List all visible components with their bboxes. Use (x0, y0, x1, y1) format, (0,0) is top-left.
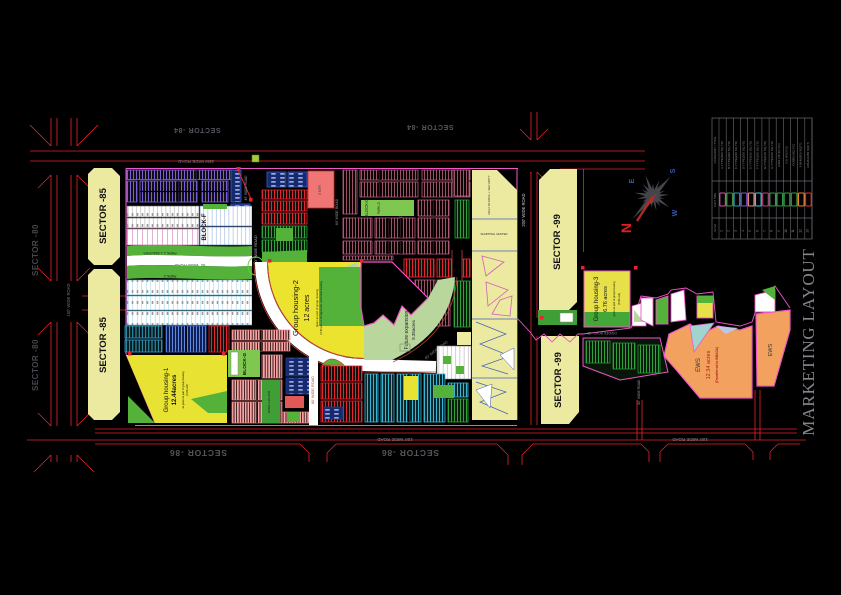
svg-text:7: 7 (763, 230, 767, 232)
svg-text:SECTOR -85: SECTOR -85 (98, 187, 109, 244)
svg-text:9: 9 (777, 230, 781, 232)
svg-text:12 acres: 12 acres (304, 294, 311, 321)
svg-text:Group housing-1: Group housing-1 (164, 367, 170, 412)
svg-text:N: N (618, 223, 634, 233)
svg-text:3: 3 (734, 230, 738, 232)
svg-text:60' WIDE ROAD: 60' WIDE ROAD (335, 198, 339, 225)
svg-text:Group housing-2: Group housing-2 (291, 280, 300, 336)
svg-text:150' WIDE ROAD: 150' WIDE ROAD (66, 283, 71, 316)
svg-text:as given as part of group hous: as given as part of group housing (182, 371, 185, 409)
svg-text:SECTOR -86: SECTOR -86 (381, 448, 439, 458)
svg-text:45' WIDE ROAD: 45' WIDE ROAD (244, 175, 248, 201)
svg-text:100' WIDE ROAD: 100' WIDE ROAD (671, 437, 707, 442)
svg-text:SHOPPING CENTER: SHOPPING CENTER (480, 232, 507, 236)
svg-text:GH (PLOTS): GH (PLOTS) (784, 146, 788, 163)
svg-text:2: 2 (727, 230, 731, 232)
svg-text:SECTOR -86: SECTOR -86 (169, 448, 227, 458)
svg-text:PARK-D: PARK-D (377, 201, 381, 214)
svg-text:25M WIDE ROAD: 25M WIDE ROAD (177, 159, 214, 164)
svg-text:13: 13 (805, 229, 809, 233)
svg-text:EWS: EWS (696, 358, 702, 372)
svg-text:80' WIDE ROAD: 80' WIDE ROAD (311, 376, 315, 404)
svg-text:80' WIDE ROAD: 80' WIDE ROAD (253, 235, 258, 265)
svg-text:9 MTR: 9 MTR (318, 185, 322, 195)
svg-text:SECTOR -80: SECTOR -80 (31, 224, 40, 276)
svg-text:given as part of group housing: given as part of group housing (315, 289, 319, 327)
svg-text:SECTOR -84: SECTOR -84 (406, 123, 453, 130)
svg-text:PLOT SIZE: PLOT SIZE (713, 193, 717, 207)
svg-text:100' WIDE ROAD: 100' WIDE ROAD (376, 437, 412, 442)
svg-text:1: 1 (720, 230, 724, 232)
svg-text:SECTOR -80: SECTOR -80 (31, 339, 40, 391)
svg-text:C-TYPE(240 SQ.YD): C-TYPE(240 SQ.YD) (734, 141, 738, 169)
svg-text:SECTOR -99: SECTOR -99 (553, 352, 564, 408)
svg-text:SECTOR -84: SECTOR -84 (173, 126, 220, 133)
svg-text:8: 8 (770, 230, 774, 232)
svg-text:HIGH SCHOOL + SECURITY: HIGH SCHOOL + SECURITY (487, 175, 491, 214)
svg-text:OPEN 1.29 ACR: OPEN 1.29 ACR (267, 390, 271, 413)
svg-text:Group housing-3: Group housing-3 (594, 276, 600, 321)
svg-text:9.35acres: 9.35acres (411, 319, 416, 340)
svg-text:BLOCK-F: BLOCK-F (202, 213, 208, 240)
svg-text:80' WIDE ROAD: 80' WIDE ROAD (637, 379, 641, 405)
svg-text:BLOCK-D: BLOCK-D (364, 199, 369, 218)
svg-text:(Transferred to BMADA): (Transferred to BMADA) (715, 347, 719, 383)
svg-text:12: 12 (798, 229, 802, 233)
svg-text:SECTOR -85: SECTOR -85 (98, 316, 109, 373)
svg-text:2-BHK(850 SQFT): 2-BHK(850 SQFT) (799, 143, 803, 168)
svg-text:E: E (629, 178, 636, 183)
svg-text:SECTOR -99: SECTOR -99 (552, 214, 563, 270)
svg-text:A-TYPE(500 SQ.YD): A-TYPE(500 SQ.YD) (720, 141, 724, 169)
svg-text:5: 5 (748, 230, 752, 232)
svg-text:F-TYPE(150 SQ.YD): F-TYPE(150 SQ.YD) (756, 141, 760, 169)
svg-text:6: 6 (755, 230, 759, 232)
svg-text:12.34 acres: 12.34 acres (706, 350, 712, 379)
svg-text:11: 11 (791, 229, 795, 233)
svg-text:PARK-2: PARK-2 (164, 274, 177, 278)
svg-text:S: S (670, 168, 677, 173)
svg-text:3-BHK(1250 SQFT): 3-BHK(1250 SQFT) (806, 142, 810, 168)
svg-text:12.44acres: 12.44acres (172, 374, 178, 405)
svg-text:COMM (SQ.YD): COMM (SQ.YD) (792, 144, 796, 166)
svg-text:CATEGORY / TYPE: CATEGORY / TYPE (713, 137, 717, 164)
svg-text:given as part of group housing: given as part of group housing (612, 281, 616, 316)
svg-text:(P-80+G3): (P-80+G3) (617, 293, 621, 305)
svg-text:(P-80+G3): (P-80+G3) (186, 384, 189, 396)
svg-text:EWS: EWS (768, 343, 774, 356)
svg-text:PARK-1 1.49ACRES: PARK-1 1.49ACRES (143, 251, 177, 255)
svg-text:SL.NO: SL.NO (713, 224, 717, 232)
svg-text:(P-80+G3 +1 G2 Approved) comma: (P-80+G3 +1 G2 Approved) commando housin… (320, 281, 323, 335)
svg-text:D-TYPE(200 SQ.YD): D-TYPE(200 SQ.YD) (741, 141, 745, 169)
svg-text:Future expansion: Future expansion (404, 310, 410, 349)
svg-text:E-TYPE(162 SQ.YD): E-TYPE(162 SQ.YD) (749, 141, 753, 169)
svg-text:10: 10 (784, 229, 788, 233)
svg-text:DIVIDED ROAD - 88: DIVIDED ROAD - 88 (587, 331, 617, 335)
svg-text:6.76 acres: 6.76 acres (603, 286, 609, 312)
svg-text:W: W (672, 209, 679, 216)
svg-text:MARKETING LAYOUT: MARKETING LAYOUT (799, 248, 818, 435)
svg-text:B-TYPE(300 SQ.YD): B-TYPE(300 SQ.YD) (727, 141, 731, 169)
svg-text:4: 4 (741, 230, 745, 232)
svg-text:200' WIDE ROAD: 200' WIDE ROAD (521, 193, 526, 226)
svg-text:BLOCK-G: BLOCK-G (242, 353, 248, 376)
svg-text:G-TYPE(120 SQ.YD): G-TYPE(120 SQ.YD) (763, 141, 767, 169)
svg-text:EWS (48 SQ.YD): EWS (48 SQ.YD) (777, 143, 781, 166)
svg-text:H-TYPE(100 SQ.YD): H-TYPE(100 SQ.YD) (770, 141, 774, 169)
